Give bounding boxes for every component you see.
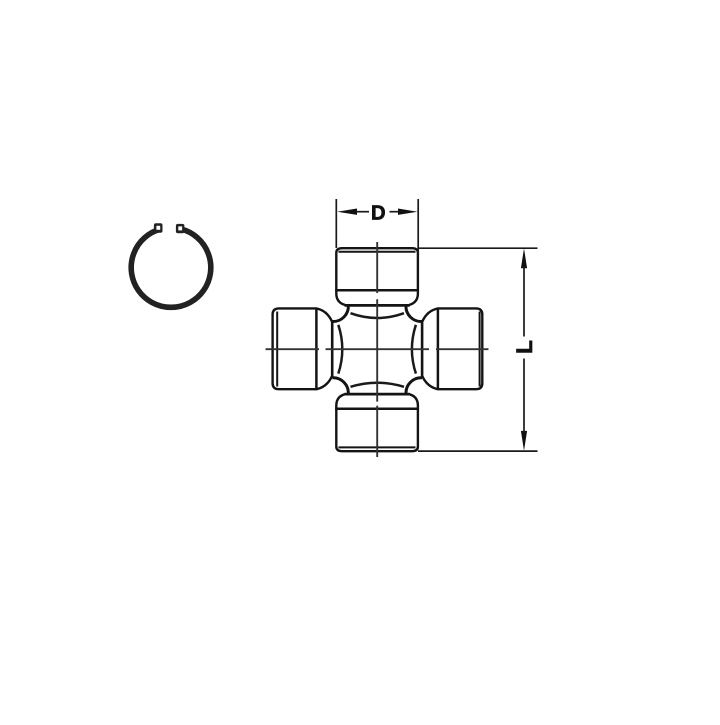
svg-text:D: D (371, 202, 386, 224)
svg-text:L: L (512, 340, 537, 354)
